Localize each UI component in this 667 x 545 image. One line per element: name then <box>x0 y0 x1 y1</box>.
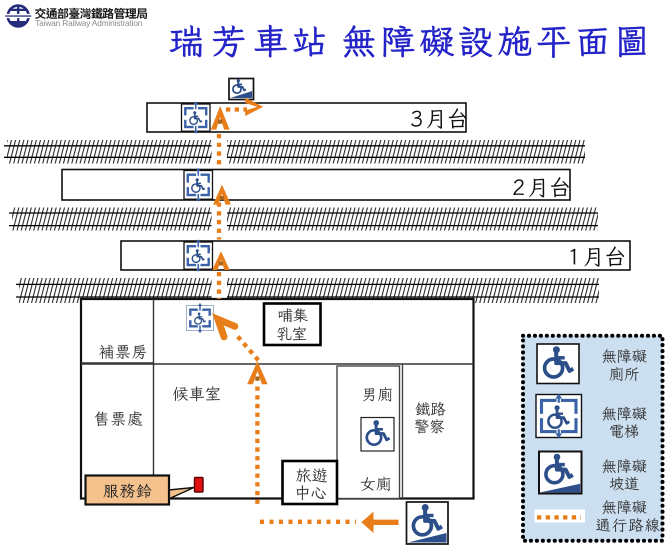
svg-text:Taiwan Railway Administration: Taiwan Railway Administration <box>35 19 142 28</box>
